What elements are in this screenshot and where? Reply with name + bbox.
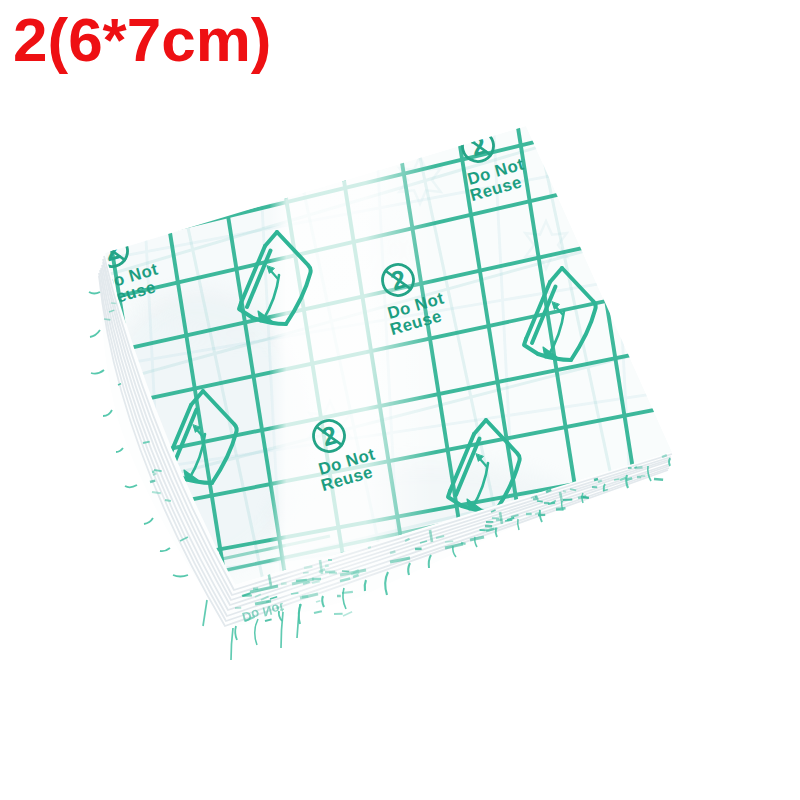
svg-text:2(6*7cm): 2(6*7cm) bbox=[13, 5, 271, 74]
